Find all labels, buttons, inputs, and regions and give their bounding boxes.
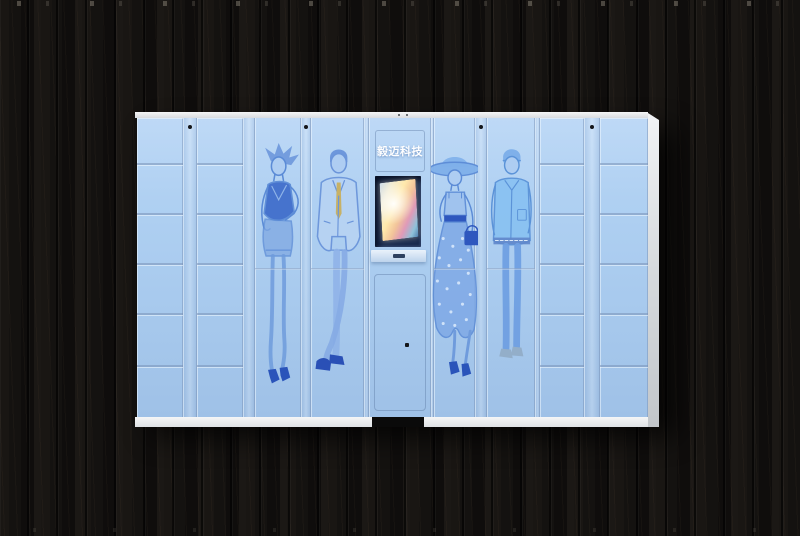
wood-top-glints: [0, 1, 800, 6]
console-lower-door: [369, 270, 431, 417]
locker-face: 毅迈科技: [137, 118, 648, 417]
locker-door-small: [540, 367, 584, 417]
small-locker-column: [540, 118, 584, 417]
tall-locker-column: [255, 118, 301, 417]
locker-door-small: [137, 315, 183, 367]
locker-door-small: [137, 118, 183, 165]
locker-door-small: [600, 315, 648, 367]
hinge-strip: [301, 118, 311, 417]
small-locker-column: [600, 118, 648, 417]
locker-door-small: [600, 265, 648, 315]
console-door-outline: [374, 274, 426, 411]
locker-door-tall-top: [434, 118, 475, 268]
locker-door-small: [600, 118, 648, 165]
kiosk-screen-module: [369, 176, 431, 262]
screw-icon: [398, 114, 400, 116]
kiosk-screen: [375, 176, 421, 247]
locker-door-small: [197, 367, 243, 417]
lock-indicator-dot: [188, 125, 192, 129]
tall-locker-column: [487, 118, 535, 417]
tall-locker-column: [311, 118, 364, 417]
kiosk-screen-display: [380, 179, 419, 241]
locker-door-small: [137, 367, 183, 417]
locker-door-small: [137, 215, 183, 265]
locker-door-tall-top: [487, 118, 535, 268]
small-locker-column: [137, 118, 183, 417]
locker-door-small: [600, 215, 648, 265]
hinge-strip: [475, 118, 487, 417]
locker-door-small: [600, 165, 648, 215]
card-slot: [393, 254, 405, 258]
locker-cabinet: 毅迈科技: [135, 112, 659, 427]
locker-door-tall-top: [255, 118, 301, 268]
locker-door-small: [137, 265, 183, 315]
brand-panel: 毅迈科技: [375, 130, 425, 172]
locker-door-small: [540, 118, 584, 165]
control-console: 毅迈科技: [369, 118, 431, 417]
lock-indicator-dot: [590, 125, 594, 129]
brand-label: 毅迈科技: [377, 143, 423, 159]
locker-door-small: [600, 367, 648, 417]
locker-door-small: [197, 165, 243, 215]
wood-bottom-glints: [0, 528, 800, 532]
hinge-strip: [183, 118, 197, 417]
locker-door-small: [197, 215, 243, 265]
base-notch: [372, 417, 424, 427]
photo-background: 毅迈科技: [0, 0, 800, 536]
locker-door-small: [197, 265, 243, 315]
hinge-strip: [584, 118, 600, 417]
screw-icon: [406, 114, 408, 116]
locker-door-small: [540, 265, 584, 315]
locker-door-small: [540, 315, 584, 367]
lock-indicator-dot: [405, 343, 409, 347]
kiosk-tray: [371, 250, 426, 262]
locker-door-small: [540, 165, 584, 215]
hinge-strip: [243, 118, 255, 417]
locker-door-small: [197, 118, 243, 165]
cabinet-side-panel: [648, 113, 659, 427]
locker-door-small: [137, 165, 183, 215]
lock-indicator-dot: [304, 125, 308, 129]
locker-door-small: [540, 215, 584, 265]
tall-locker-column: [434, 118, 475, 417]
locker-door-tall-top: [311, 118, 364, 268]
locker-door-small: [197, 315, 243, 367]
small-locker-column: [197, 118, 243, 417]
lock-indicator-dot: [479, 125, 483, 129]
